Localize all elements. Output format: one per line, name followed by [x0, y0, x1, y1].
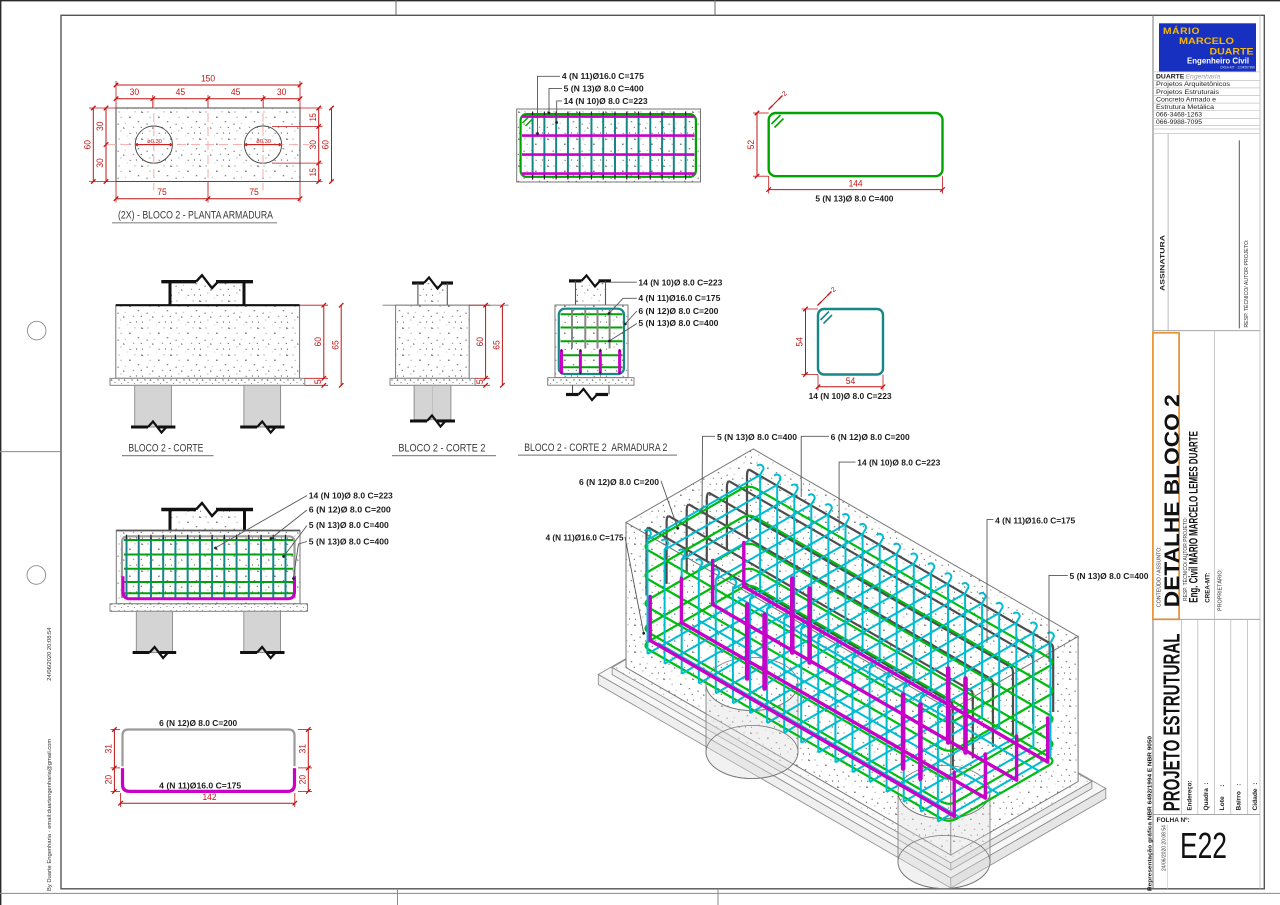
svg-text:65: 65	[492, 340, 502, 350]
svg-text:4 (N 11)Ø16.0 C=175: 4 (N 11)Ø16.0 C=175	[546, 534, 625, 543]
svg-text:DETALHE BLOCO 2: DETALHE BLOCO 2	[1160, 394, 1184, 607]
svg-text:30: 30	[95, 122, 105, 132]
svg-text:6 (N 12)Ø 8.0 C=200: 6 (N 12)Ø 8.0 C=200	[159, 719, 238, 728]
svg-text:14 (N 10)Ø 8.0 C=223: 14 (N 10)Ø 8.0 C=223	[857, 458, 941, 467]
svg-text:142: 142	[203, 792, 217, 802]
svg-text:60: 60	[83, 140, 93, 150]
svg-text:Concreto Armado e: Concreto Armado e	[1156, 96, 1216, 103]
svg-text:PROJETO ESTRUTURAL: PROJETO ESTRUTURAL	[1159, 634, 1185, 812]
svg-text:Lote :: Lote :	[1219, 785, 1226, 811]
svg-text:5 (N 13)Ø 8.0 C=400: 5 (N 13)Ø 8.0 C=400	[717, 433, 798, 442]
svg-text:150: 150	[201, 74, 215, 84]
svg-text:6 (N 12)Ø 8.0 C=200: 6 (N 12)Ø 8.0 C=200	[638, 307, 719, 316]
svg-text:MARCELO: MARCELO	[1179, 36, 1234, 47]
svg-text:30: 30	[277, 87, 287, 97]
svg-text:14 (N 10)Ø 8.0 C=223: 14 (N 10)Ø 8.0 C=223	[638, 278, 723, 287]
svg-text:Engenharia: Engenharia	[1186, 74, 1221, 81]
svg-text:4 (N 11)Ø16.0 C=175: 4 (N 11)Ø16.0 C=175	[638, 294, 721, 303]
svg-text:5: 5	[313, 379, 323, 384]
svg-text:MÁRIO: MÁRIO	[1163, 26, 1200, 37]
svg-text:ø0.30: ø0.30	[256, 139, 271, 145]
svg-text:14 (N 10)Ø 8.0 C=223: 14 (N 10)Ø 8.0 C=223	[564, 97, 649, 106]
svg-text:15: 15	[308, 168, 318, 176]
svg-text:Bairro :: Bairro :	[1236, 784, 1243, 811]
svg-text:52: 52	[746, 140, 756, 150]
svg-text:DUARTE: DUARTE	[1156, 74, 1185, 81]
svg-text:5 (N 13)Ø 8.0 C=400: 5 (N 13)Ø 8.0 C=400	[1070, 572, 1150, 581]
svg-text:75: 75	[249, 187, 259, 197]
svg-text:4 (N 11)Ø16.0 C=175: 4 (N 11)Ø16.0 C=175	[159, 782, 242, 791]
svg-text:5 (N 13)Ø 8.0 C=400: 5 (N 13)Ø 8.0 C=400	[815, 194, 894, 203]
svg-text:FOLHA Nº:: FOLHA Nº:	[1157, 817, 1190, 824]
svg-text:5 (N 13)Ø 8.0 C=400: 5 (N 13)Ø 8.0 C=400	[638, 319, 719, 328]
svg-text:6 (N 12)Ø 8.0 C=200: 6 (N 12)Ø 8.0 C=200	[309, 506, 392, 515]
svg-text:(2X) - BLOCO 2 - PLANTA ARMADU: (2X) - BLOCO 2 - PLANTA ARMADURA	[118, 210, 274, 222]
svg-text:5 (N 13)Ø 8.0 C=400: 5 (N 13)Ø 8.0 C=400	[309, 521, 390, 530]
svg-text:54: 54	[795, 337, 805, 347]
svg-text:15: 15	[308, 113, 318, 121]
svg-text:60: 60	[475, 337, 485, 347]
svg-text:5 (N 13)Ø 8.0 C=400: 5 (N 13)Ø 8.0 C=400	[309, 538, 390, 547]
svg-text:Cidade :: Cidade :	[1252, 783, 1259, 811]
svg-text:54: 54	[846, 376, 856, 386]
svg-text:Quadra :: Quadra :	[1203, 783, 1210, 811]
svg-text:14 (N 10)Ø 8.0 C=223: 14 (N 10)Ø 8.0 C=223	[309, 491, 394, 500]
svg-text:BLOCO 2 - CORTE 2: BLOCO 2 - CORTE 2	[398, 442, 485, 454]
svg-text:60: 60	[313, 337, 323, 347]
svg-text:4 (N 11)Ø16.0 C=175: 4 (N 11)Ø16.0 C=175	[995, 517, 1076, 526]
svg-text:6 (N 12)Ø 8.0 C=200: 6 (N 12)Ø 8.0 C=200	[831, 433, 911, 442]
svg-text:ASSINATURA: ASSINATURA	[1160, 235, 1167, 291]
svg-text:E22: E22	[1180, 825, 1227, 866]
svg-text:6 (N 12)Ø 8.0 C=200: 6 (N 12)Ø 8.0 C=200	[579, 478, 660, 487]
svg-text:144: 144	[849, 178, 863, 188]
svg-text:CREA-MT - 1234567890: CREA-MT - 1234567890	[1220, 66, 1255, 70]
svg-text:BLOCO 2 - CORTE 2 ARMADURA 2: BLOCO 2 - CORTE 2 ARMADURA 2	[524, 442, 667, 454]
svg-text:14 (N 10)Ø 8.0 C=223: 14 (N 10)Ø 8.0 C=223	[809, 392, 893, 401]
svg-text:Representação gráfica NBR 6492: Representação gráfica NBR 6492/1994 E NB…	[1148, 736, 1154, 891]
svg-text:066-3468-1263: 066-3468-1263	[1156, 112, 1202, 119]
svg-text:RESP. TÉCNICO/ AUTOR PROJETO:: RESP. TÉCNICO/ AUTOR PROJETO:	[1243, 240, 1250, 328]
svg-text:Eng. Civil MÁRIO MARCELO LEMES: Eng. Civil MÁRIO MARCELO LEMES DUARTE	[1186, 431, 1201, 603]
svg-text:Estrutura Metálica: Estrutura Metálica	[1156, 104, 1214, 111]
svg-text:ø0.30: ø0.30	[147, 139, 162, 145]
svg-text:5: 5	[475, 379, 485, 384]
svg-text:30: 30	[308, 140, 318, 150]
svg-text:Engenheiro Civil: Engenheiro Civil	[1187, 57, 1249, 66]
svg-text:Endereço:: Endereço:	[1187, 781, 1194, 811]
svg-text:65: 65	[330, 340, 340, 350]
svg-text:31: 31	[104, 744, 114, 754]
svg-text:20: 20	[104, 775, 114, 785]
svg-text:Projetos Arquitetônicos: Projetos Arquitetônicos	[1156, 81, 1231, 88]
svg-text:45: 45	[176, 87, 186, 97]
svg-text:By Duarte Engenharia - email:d: By Duarte Engenharia - email:duartengenh…	[47, 739, 53, 891]
svg-text:CREA-MT:: CREA-MT:	[1205, 573, 1212, 603]
svg-text:4 (N 11)Ø16.0 C=175: 4 (N 11)Ø16.0 C=175	[562, 72, 645, 81]
svg-text:Projetos Estruturais: Projetos Estruturais	[1156, 89, 1220, 96]
svg-text:BLOCO 2 - CORTE: BLOCO 2 - CORTE	[128, 442, 203, 454]
svg-text:30: 30	[130, 87, 140, 97]
svg-text:30: 30	[95, 158, 105, 168]
svg-text:24/06/2020 20:08:54: 24/06/2020 20:08:54	[1162, 825, 1168, 871]
svg-text:PROPRIETÁRIO:: PROPRIETÁRIO:	[1217, 569, 1224, 611]
svg-text:066-9988-7095: 066-9988-7095	[1156, 119, 1202, 126]
svg-text:5 (N 13)Ø 8.0 C=400: 5 (N 13)Ø 8.0 C=400	[564, 85, 645, 94]
svg-text:31: 31	[297, 744, 307, 754]
svg-text:75: 75	[157, 187, 167, 197]
svg-text:20: 20	[297, 775, 307, 785]
svg-text:60: 60	[321, 140, 331, 150]
svg-text:24/06/2020 20:08:54: 24/06/2020 20:08:54	[47, 627, 53, 681]
svg-text:45: 45	[231, 87, 241, 97]
